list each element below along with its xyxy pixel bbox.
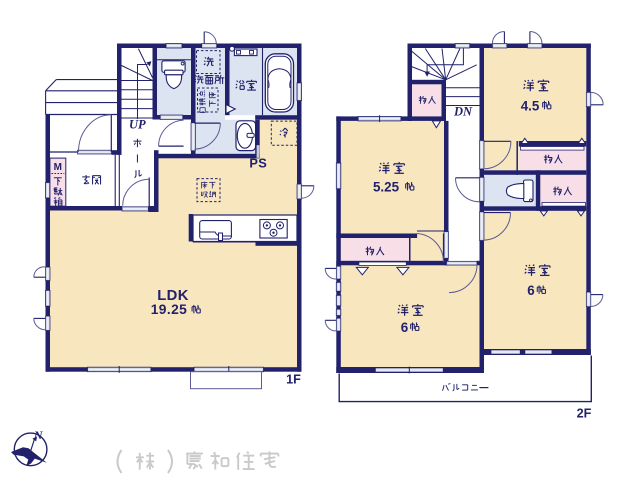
svg-text:6: 6 — [401, 320, 408, 335]
svg-text:N: N — [33, 428, 44, 442]
svg-text:M: M — [54, 162, 62, 173]
svg-text:1F: 1F — [286, 372, 301, 386]
svg-text:5.25: 5.25 — [373, 180, 400, 195]
svg-text:2F: 2F — [577, 407, 592, 421]
svg-text:DN: DN — [453, 105, 473, 119]
svg-text:PS: PS — [249, 155, 267, 170]
svg-text:UP: UP — [129, 118, 146, 132]
svg-text:4.5: 4.5 — [521, 99, 540, 114]
svg-text:6: 6 — [527, 283, 534, 298]
svg-text:19.25: 19.25 — [151, 302, 188, 317]
